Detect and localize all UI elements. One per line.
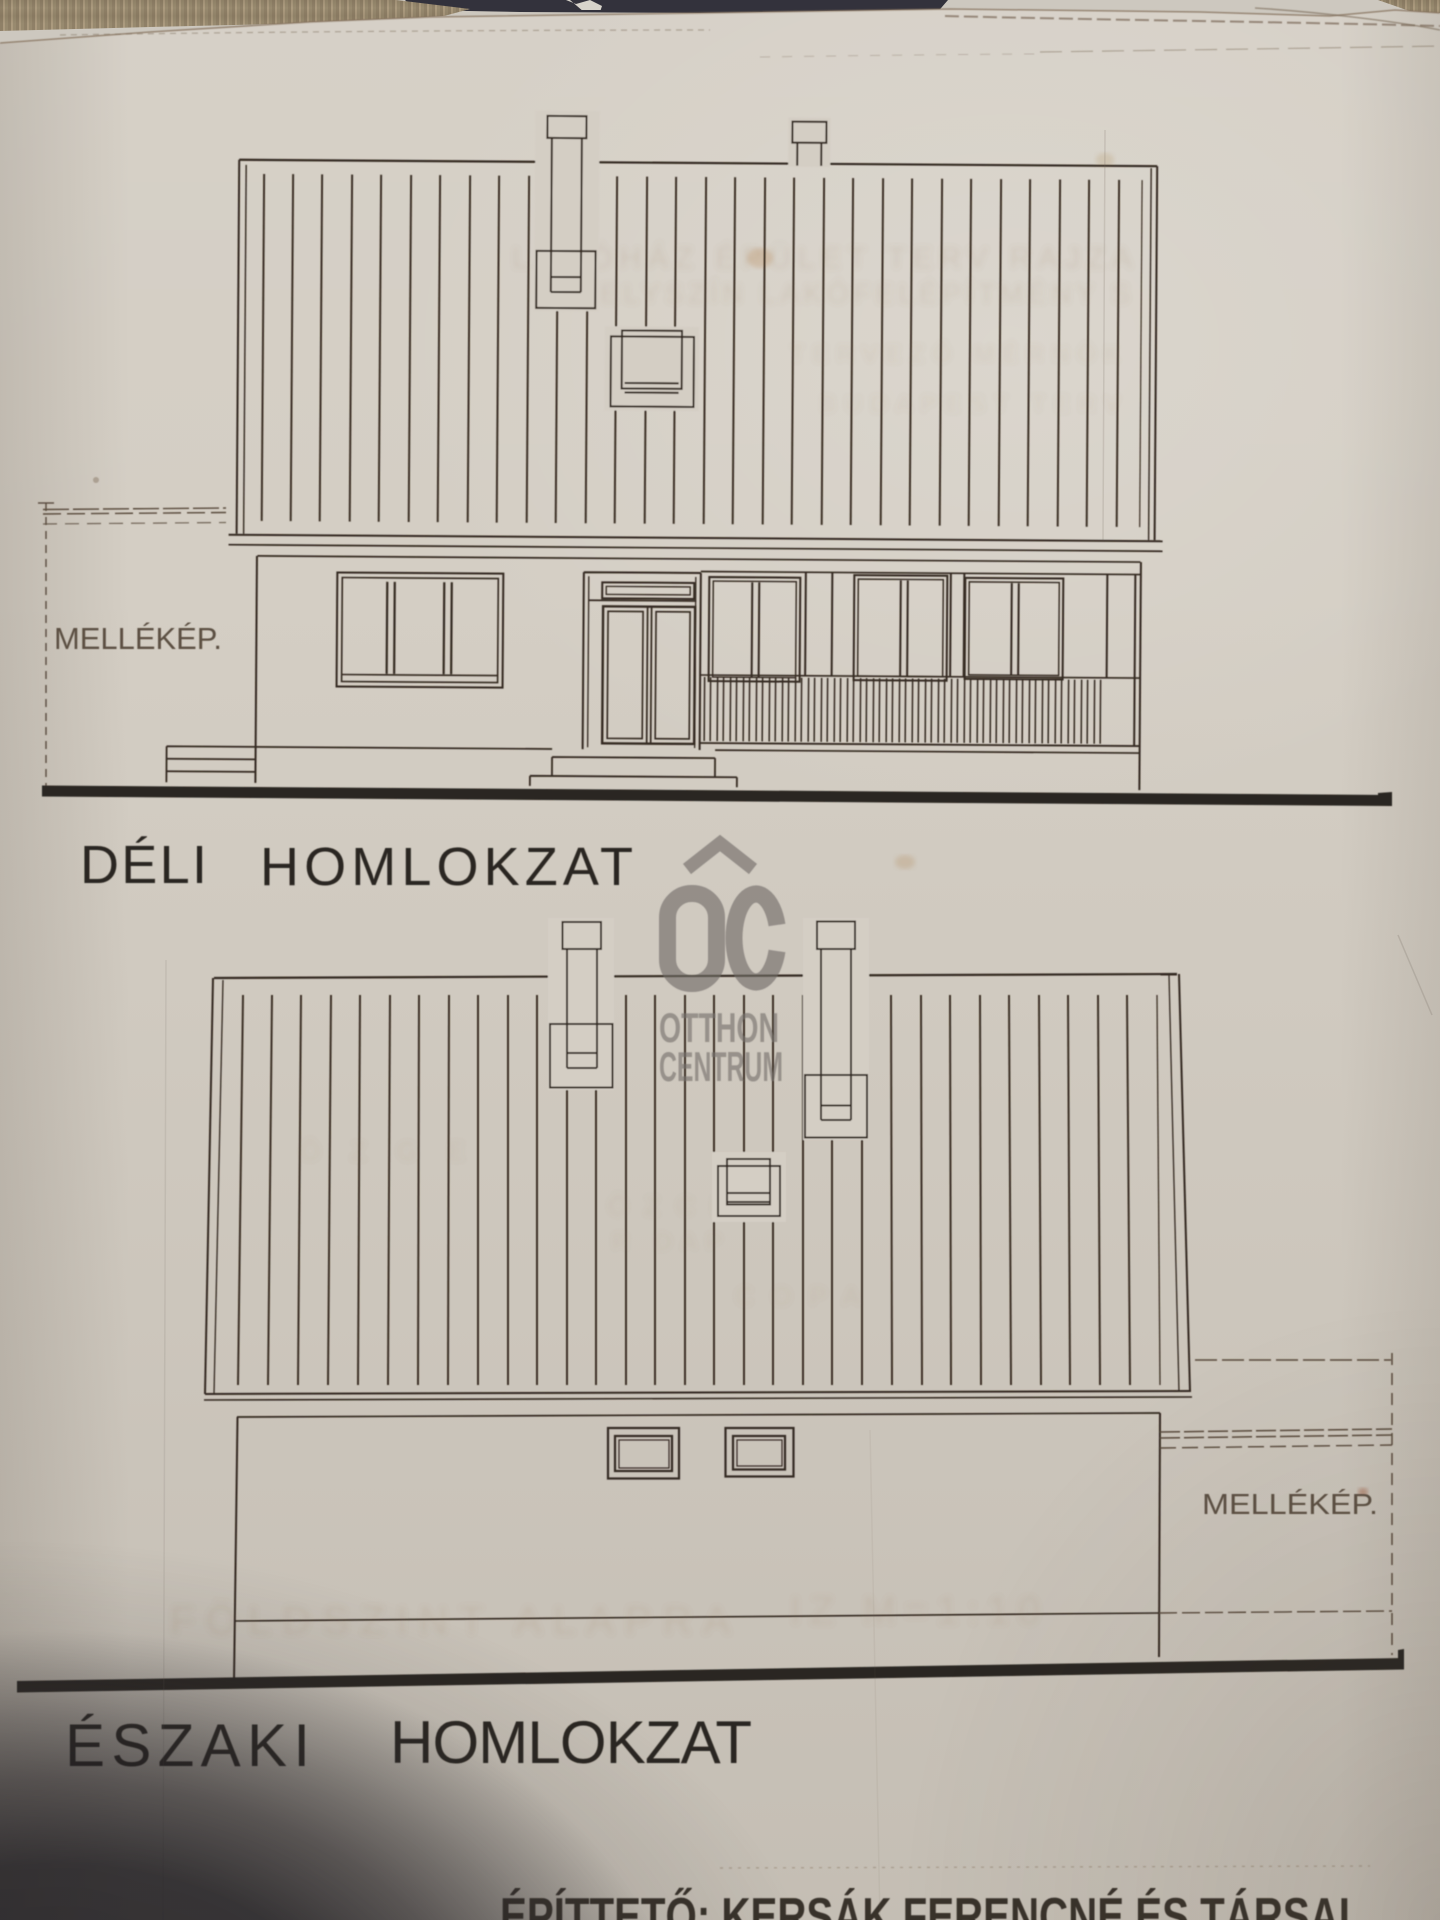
svg-text:DÉLI: DÉLI xyxy=(80,835,207,895)
svg-text:HOMLOKZAT: HOMLOKZAT xyxy=(260,837,633,897)
svg-text:ÖZGE: ÖZGE xyxy=(300,1136,465,1166)
svg-text:R DAP: R DAP xyxy=(612,1229,722,1256)
svg-text:MELLÉKÉP.: MELLÉKÉP. xyxy=(54,621,222,656)
svg-text:CENTRUM: CENTRUM xyxy=(659,1043,783,1090)
svg-text:LAKÓHÁZ ÉPÜLET TERV RAJZA: LAKÓHÁZ ÉPÜLET TERV RAJZA xyxy=(512,242,1132,275)
svg-text:TERVEZŐ MÉRNÖK: TERVEZŐ MÉRNÖK xyxy=(790,341,1120,368)
svg-text:COPA: COPA xyxy=(735,1281,861,1311)
